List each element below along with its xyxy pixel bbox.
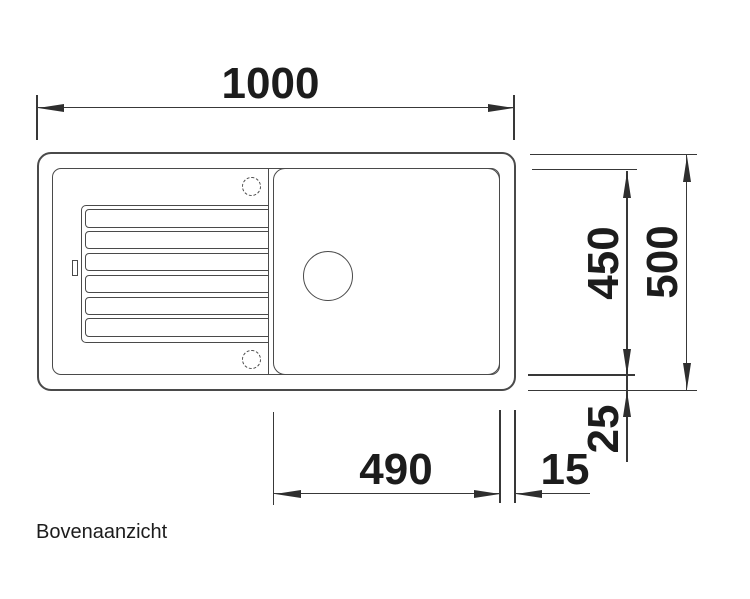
drainer-groove <box>85 231 269 250</box>
extension-line <box>530 154 697 155</box>
arrowhead-icon <box>488 104 514 112</box>
technical-drawing-canvas: 1000 450 25 500 490 15 Bovenaanzicht <box>0 0 750 599</box>
overflow-notch <box>72 260 78 276</box>
arrowhead-icon <box>683 156 691 182</box>
dim-overall-width-label: 1000 <box>171 62 371 106</box>
drainer-groove <box>85 318 269 337</box>
tap-hole-dashed-circle <box>242 350 261 369</box>
drain-hole-circle <box>303 251 353 301</box>
drainer-groove <box>85 253 269 272</box>
view-caption: Bovenaanzicht <box>36 520 167 544</box>
extension-line <box>528 390 697 391</box>
extension-line <box>36 95 37 140</box>
dim-basin-width-label: 490 <box>296 448 496 492</box>
arrowhead-icon <box>683 363 691 389</box>
drainer-groove <box>85 275 269 294</box>
dim-right-rim-label: 15 <box>515 448 615 492</box>
dim-inner-depth-label: 450 <box>582 193 626 333</box>
drainer-groove <box>85 297 269 316</box>
dim-overall-depth-label: 500 <box>641 192 685 332</box>
arrowhead-icon <box>38 104 64 112</box>
tap-hole-dashed-circle <box>242 177 261 196</box>
extension-line <box>513 95 514 140</box>
extension-line <box>532 169 637 170</box>
drainer-groove <box>85 209 269 228</box>
